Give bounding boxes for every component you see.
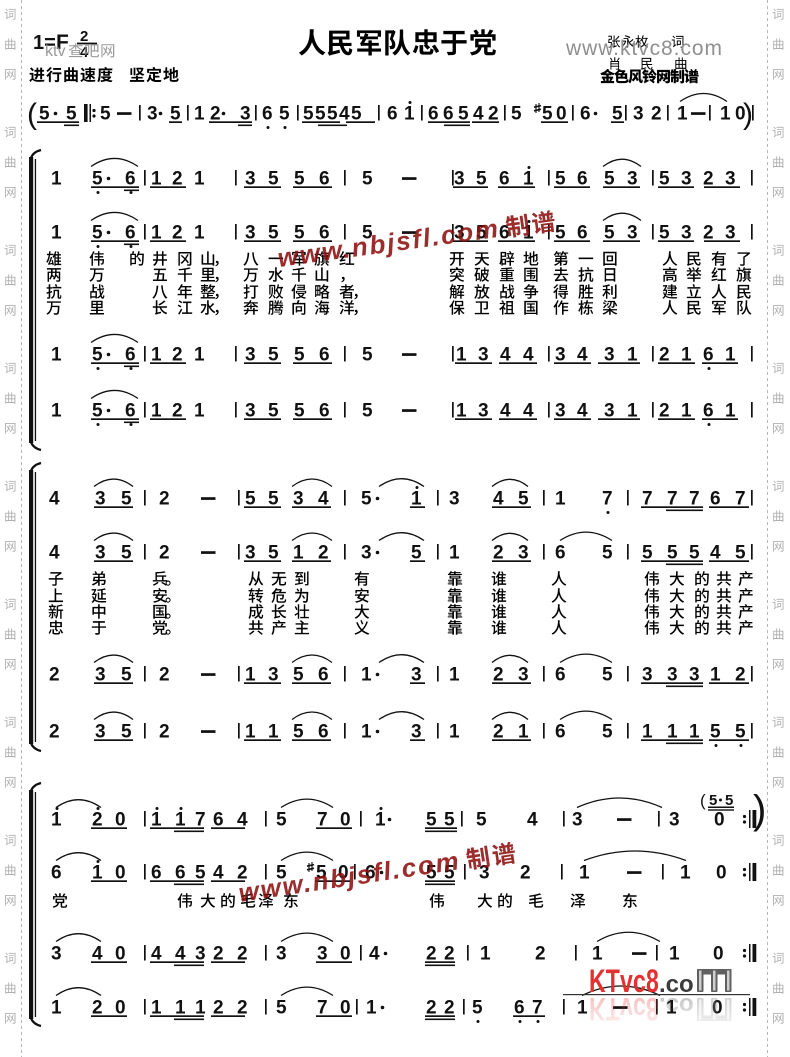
svg-text:3: 3 [411,721,422,742]
svg-text:2: 2 [159,664,170,685]
svg-text:3: 3 [725,222,736,243]
svg-text:3: 3 [268,664,279,685]
svg-text:.co: .co [659,992,694,1019]
svg-text:1: 1 [456,344,467,365]
svg-text:3: 3 [627,222,638,243]
svg-text:5: 5 [602,664,613,685]
svg-text:1: 1 [194,103,205,124]
svg-text:1: 1 [175,809,186,830]
svg-text:4: 4 [92,943,103,964]
svg-text:7: 7 [532,997,543,1018]
svg-text:5: 5 [294,344,305,365]
svg-text:3: 3 [276,943,287,964]
svg-text:3: 3 [681,222,692,243]
svg-text:1: 1 [194,168,205,189]
svg-text:3: 3 [51,943,62,964]
svg-text:5: 5 [362,344,373,365]
svg-text:7: 7 [195,809,206,830]
svg-text:5: 5 [642,542,653,563]
svg-text:6: 6 [555,664,566,685]
svg-text:1: 1 [592,943,603,964]
svg-text:1: 1 [404,103,415,124]
svg-text:4: 4 [237,809,248,830]
svg-text:1: 1 [449,721,460,742]
svg-text:5: 5 [268,168,279,189]
svg-text:3: 3 [633,103,644,124]
svg-text:6: 6 [555,721,566,742]
svg-text:): ) [753,788,766,832]
svg-text:2: 2 [210,103,221,124]
svg-text:5: 5 [351,103,362,124]
svg-text:0: 0 [716,862,727,883]
svg-text:5: 5 [121,664,132,685]
svg-text:1: 1 [151,168,162,189]
svg-text:7: 7 [317,997,328,1018]
svg-text:7: 7 [667,488,678,509]
svg-text:(: ( [27,98,37,131]
svg-text:5: 5 [279,103,290,124]
svg-text:6: 6 [319,344,330,365]
svg-text:): ) [743,98,753,131]
svg-text:4: 4 [213,862,224,883]
svg-text:4: 4 [523,400,534,421]
svg-text:3: 3 [454,168,465,189]
svg-text:6: 6 [175,862,186,883]
svg-text:3: 3 [195,943,206,964]
svg-text:3: 3 [95,488,106,509]
svg-text:4: 4 [49,542,60,563]
svg-text:3: 3 [642,664,653,685]
svg-text:5: 5 [518,488,529,509]
svg-text:2: 2 [493,542,504,563]
svg-text:1: 1 [669,943,680,964]
svg-text:5: 5 [411,542,422,563]
svg-text:1: 1 [245,664,256,685]
svg-text:2: 2 [172,344,183,365]
svg-text:5: 5 [327,103,338,124]
svg-text:3: 3 [604,400,615,421]
svg-text:5: 5 [361,488,372,509]
svg-text:0: 0 [713,943,724,964]
svg-text:0: 0 [115,943,126,964]
svg-text:5: 5 [476,809,487,830]
svg-text:5: 5 [121,721,132,742]
svg-text:5: 5 [604,222,615,243]
svg-text:2: 2 [213,997,224,1018]
svg-text:6: 6 [703,400,714,421]
svg-text:5: 5 [602,721,613,742]
svg-text:5: 5 [604,168,615,189]
svg-text:7: 7 [317,809,328,830]
svg-text:2: 2 [488,103,499,124]
svg-text:3: 3 [555,400,566,421]
svg-text:6: 6 [262,103,273,124]
svg-text:1: 1 [175,997,186,1018]
svg-text:0: 0 [340,943,351,964]
svg-text:2: 2 [735,664,746,685]
svg-text:3: 3 [317,943,328,964]
svg-text:5: 5 [362,168,373,189]
svg-text:6: 6 [319,400,330,421]
svg-text:3: 3 [245,222,256,243]
svg-text:2: 2 [493,664,504,685]
svg-text:2: 2 [493,721,504,742]
svg-text:1: 1 [194,400,205,421]
svg-text:3: 3 [293,488,304,509]
svg-text:3: 3 [555,344,566,365]
svg-text:2: 2 [703,168,714,189]
svg-text:3: 3 [669,809,680,830]
svg-text:5: 5 [121,542,132,563]
svg-text:7: 7 [735,488,746,509]
svg-text:5: 5 [303,103,314,124]
svg-text:1: 1 [480,943,491,964]
svg-text:2: 2 [213,943,224,964]
svg-text:1: 1 [449,542,460,563]
svg-text:4: 4 [339,103,350,124]
svg-text:3: 3 [689,664,700,685]
svg-text:6: 6 [125,400,136,421]
svg-text:1: 1 [555,488,566,509]
svg-text:5: 5 [293,721,304,742]
svg-text:5: 5 [268,344,279,365]
svg-text:(: ( [700,791,706,810]
svg-text:6: 6 [125,344,136,365]
svg-text:2: 2 [172,222,183,243]
svg-text:4: 4 [473,103,484,124]
svg-text:3: 3 [449,488,460,509]
svg-text:1: 1 [51,400,62,421]
svg-text:6: 6 [387,103,398,124]
svg-text:1: 1 [411,488,422,509]
svg-text:5: 5 [268,542,279,563]
svg-text:6: 6 [710,488,721,509]
svg-text:4: 4 [49,488,60,509]
svg-text:4: 4 [318,488,329,509]
svg-text:5: 5 [709,792,717,809]
svg-text:6: 6 [580,103,591,124]
svg-text:5: 5 [659,222,670,243]
svg-text:2: 2 [651,103,662,124]
svg-text:4: 4 [577,344,588,365]
svg-text:0: 0 [556,103,567,124]
svg-text:0: 0 [115,809,126,830]
svg-text:5: 5 [426,809,437,830]
svg-text:4: 4 [523,344,534,365]
svg-text:KTvc8: KTvc8 [589,991,659,1027]
svg-text:2: 2 [703,222,714,243]
svg-text:1: 1 [523,168,534,189]
svg-text:1: 1 [681,344,692,365]
svg-text:1: 1 [456,400,467,421]
svg-text:7: 7 [689,488,700,509]
svg-text:3: 3 [604,344,615,365]
svg-text:1: 1 [725,400,736,421]
svg-text:1: 1 [151,997,162,1018]
svg-text:5: 5 [710,721,721,742]
svg-text:1: 1 [627,400,638,421]
svg-text:5: 5 [612,103,623,124]
svg-text:6: 6 [318,664,329,685]
svg-text:1: 1 [518,721,529,742]
svg-text:5: 5 [458,103,469,124]
svg-text:5: 5 [444,809,455,830]
svg-text:1: 1 [689,721,700,742]
svg-text:2: 2 [659,344,670,365]
svg-text:6: 6 [213,809,224,830]
svg-text:2: 2 [520,862,531,883]
svg-text:4: 4 [527,809,538,830]
svg-text:6: 6 [318,721,329,742]
svg-text:4: 4 [577,400,588,421]
svg-text:5: 5 [294,400,305,421]
svg-text:5: 5 [92,222,103,243]
svg-text:1: 1 [361,664,372,685]
svg-text:0: 0 [340,809,351,830]
svg-text:3: 3 [411,664,422,685]
svg-text:2: 2 [535,943,546,964]
svg-text:3: 3 [518,542,529,563]
svg-text:1: 1 [577,997,588,1018]
svg-text:2: 2 [172,168,183,189]
svg-text:5: 5 [100,103,111,124]
svg-text:4: 4 [151,943,162,964]
svg-text:5: 5 [92,168,103,189]
svg-text:1: 1 [627,344,638,365]
svg-text:2: 2 [159,488,170,509]
svg-text:1: 1 [449,664,460,685]
svg-text:1: 1 [151,809,162,830]
svg-text:ktv: ktv [45,43,65,60]
svg-text:2: 2 [237,943,248,964]
svg-text:4: 4 [500,400,511,421]
svg-text:1: 1 [720,103,731,124]
svg-text:1: 1 [677,103,688,124]
svg-text:2: 2 [237,997,248,1018]
svg-text:4: 4 [369,943,380,964]
svg-text:5: 5 [689,542,700,563]
svg-text:1: 1 [579,862,590,883]
svg-text:2: 2 [444,997,455,1018]
svg-text:1: 1 [194,222,205,243]
svg-text:4: 4 [710,542,721,563]
svg-text:1: 1 [361,721,372,742]
svg-text:1: 1 [51,809,62,830]
svg-text:5: 5 [170,103,181,124]
svg-text:3: 3 [95,664,106,685]
svg-text:3: 3 [245,344,256,365]
svg-text:3: 3 [95,542,106,563]
svg-text:0: 0 [714,809,725,830]
svg-text:2: 2 [444,943,455,964]
svg-text:5: 5 [245,488,256,509]
svg-text:0: 0 [115,997,126,1018]
svg-text:5: 5 [121,488,132,509]
svg-text:1: 1 [268,721,279,742]
svg-text:6: 6 [319,168,330,189]
svg-text:1: 1 [51,997,62,1018]
svg-text:6: 6 [443,103,454,124]
svg-text:5: 5 [92,400,103,421]
svg-text:2: 2 [159,542,170,563]
svg-text:1: 1 [681,400,692,421]
svg-text:3: 3 [95,721,106,742]
svg-text:1: 1 [51,168,62,189]
svg-text:5: 5 [659,168,670,189]
svg-text:5: 5 [66,103,77,124]
svg-text:7: 7 [642,488,653,509]
svg-text:5: 5 [268,488,279,509]
svg-text:www.ktvc8.com: www.ktvc8.com [565,37,722,60]
svg-text:1: 1 [293,542,304,563]
svg-text:1: 1 [245,721,256,742]
svg-text:3: 3 [681,168,692,189]
svg-text:5: 5 [472,997,483,1018]
svg-text:6: 6 [125,222,136,243]
svg-text:1: 1 [195,997,206,1018]
svg-text:4: 4 [500,344,511,365]
svg-text:6: 6 [499,168,510,189]
svg-text:3: 3 [518,664,529,685]
svg-text:1: 1 [710,664,721,685]
svg-text:1: 1 [667,721,678,742]
svg-text:3: 3 [478,400,489,421]
svg-text:3: 3 [725,168,736,189]
svg-text:3: 3 [245,542,256,563]
svg-text:1: 1 [642,721,653,742]
svg-text:6: 6 [577,222,588,243]
svg-text:5: 5 [293,664,304,685]
svg-text:5: 5 [268,400,279,421]
svg-text:3: 3 [667,664,678,685]
svg-text:5: 5 [276,997,287,1018]
svg-text:3: 3 [361,542,372,563]
svg-text:5: 5 [667,542,678,563]
svg-text:2: 2 [318,542,329,563]
svg-text:2: 2 [49,721,60,742]
svg-text:6: 6 [151,862,162,883]
svg-text:5: 5 [276,809,287,830]
svg-text:5: 5 [725,792,733,809]
svg-text:2: 2 [159,721,170,742]
svg-text:2: 2 [172,400,183,421]
svg-text:1: 1 [92,862,103,883]
svg-text:6: 6 [555,542,566,563]
svg-text:5: 5 [294,168,305,189]
svg-text:2: 2 [659,400,670,421]
svg-text:6: 6 [703,344,714,365]
svg-text:5: 5 [602,542,613,563]
svg-text:5: 5 [268,222,279,243]
svg-text:5: 5 [39,103,50,124]
svg-text:5: 5 [476,168,487,189]
svg-text:5: 5 [362,400,373,421]
svg-text:1: 1 [151,400,162,421]
svg-text:5: 5 [542,103,553,124]
svg-text:2: 2 [426,997,437,1018]
svg-text:1: 1 [725,344,736,365]
svg-text:5: 5 [555,222,566,243]
svg-text:2: 2 [49,664,60,685]
svg-text:2: 2 [426,943,437,964]
svg-text:6: 6 [428,103,439,124]
svg-text:1: 1 [680,862,691,883]
svg-text:5: 5 [735,721,746,742]
svg-text:6: 6 [514,997,525,1018]
svg-text:4: 4 [493,488,504,509]
svg-text:3: 3 [478,344,489,365]
svg-text:5: 5 [555,168,566,189]
svg-text:3: 3 [240,103,251,124]
svg-text:3: 3 [245,400,256,421]
svg-text:1: 1 [194,344,205,365]
svg-text:3: 3 [627,168,638,189]
svg-text:2: 2 [92,997,103,1018]
svg-text:3: 3 [572,809,583,830]
svg-text:5: 5 [315,103,326,124]
svg-text:5: 5 [195,862,206,883]
svg-text:6: 6 [51,862,62,883]
svg-text:6: 6 [125,168,136,189]
svg-text:0: 0 [340,997,351,1018]
svg-text:1: 1 [51,344,62,365]
svg-text:5: 5 [511,103,522,124]
svg-text:7: 7 [602,488,613,509]
svg-text:2: 2 [92,809,103,830]
svg-text:3: 3 [245,168,256,189]
svg-text:5: 5 [735,542,746,563]
svg-text:0: 0 [115,862,126,883]
svg-text:4: 4 [175,943,186,964]
svg-text:2: 2 [80,28,88,45]
svg-text:6: 6 [577,168,588,189]
svg-text:3: 3 [147,103,158,124]
svg-text:1: 1 [51,222,62,243]
svg-text:5: 5 [92,344,103,365]
svg-text:1: 1 [151,222,162,243]
svg-text:1: 1 [366,997,377,1018]
svg-text:1: 1 [375,809,386,830]
svg-text:1: 1 [151,344,162,365]
